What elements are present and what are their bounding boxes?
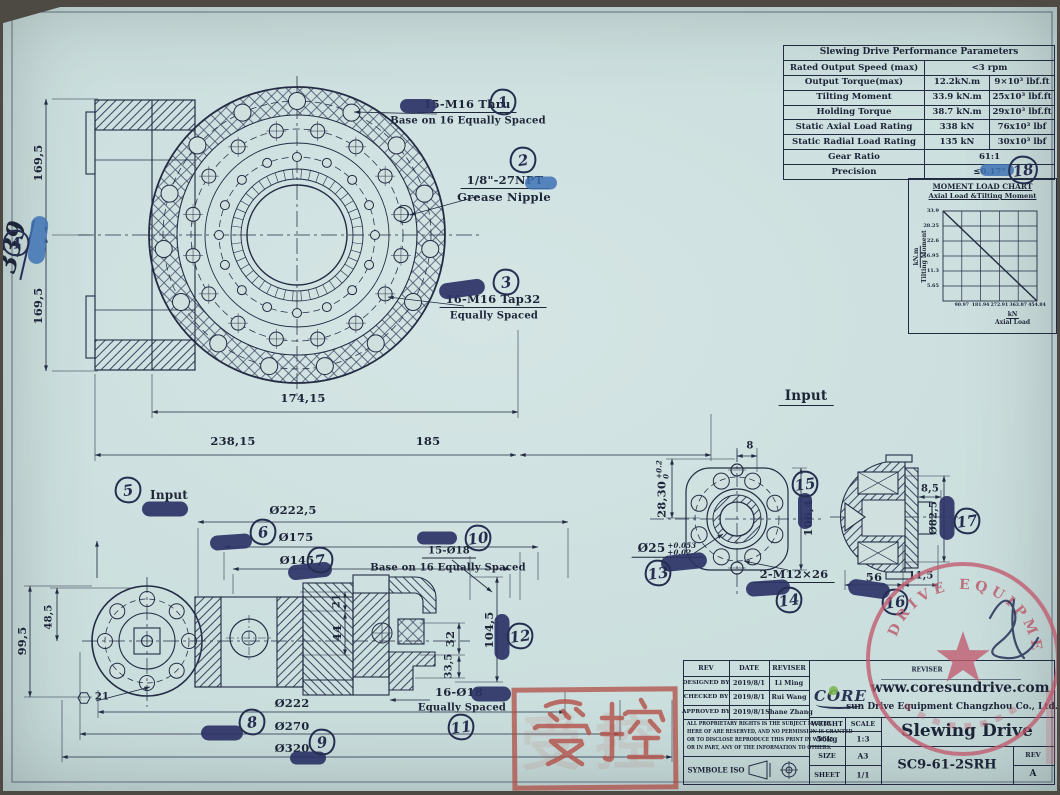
marker-blob-10 [417,532,457,545]
y-axis-unit: kN.m [913,246,921,268]
logo-leaf-icon [829,686,838,695]
dim-dia-222-5: Ø222,5 [269,503,316,517]
perf-value: 38.7 kN.m [925,106,990,120]
tb-weight-value: 56kg [817,734,838,743]
marker-blob-8 [201,726,243,741]
dim-174-15: 174,15 [280,391,325,405]
dim-238-15: 238,15 [210,434,255,448]
chart-title: MOMENT LOAD CHART [909,182,1056,191]
tb-designed-name: Li Ming [775,679,803,687]
tb-reviser2: REVISER [912,667,943,674]
dim-99-5: 99,5 [15,627,29,656]
dim-11-5: 11,5 [908,571,933,582]
tb-weight-label: WEIGHT [811,720,843,728]
perf-label: Gear Ratio [784,150,925,164]
dim-21-hex: 21 [95,692,109,703]
x-axis-unit: kN [1006,311,1020,319]
dim-169-5-lower: 169,5 [31,287,45,324]
marker-blob-2 [525,177,557,190]
perf-label: Precision [784,165,925,179]
marker-blob-17 [940,496,955,540]
perf-label: Tilting Moment [784,91,925,105]
dim-dia-270: Ø270 [275,719,310,733]
tb-col-reviser: REVISER [772,664,806,672]
perf-value-imperial: 9×10³ lbf.ft [990,76,1054,90]
chart-y-axis-label: kN.m Tilting Moment [913,230,928,283]
tb-approved-by: APPROVED BY [682,709,730,715]
dim-dia-82-5: Ø82,5 [929,501,940,535]
perf-value-imperial: 76x10³ lbf [990,120,1054,134]
dim-44: 44 [330,625,344,641]
photo-edge-left [0,0,3,795]
callout-equally-spaced-b: Equally Spaced [418,703,506,714]
title-block: REV DATE REVISER DESIGNED BY 2019/8/1 Li… [683,660,1055,785]
chart-plot-area [943,211,1037,301]
y-axis-name: Tilting Moment [921,230,928,283]
tb-checked-name: Rui Wang [771,693,806,701]
chart-x-axis-label: kN Axial Load [995,311,1030,326]
perf-value: 338 kN [925,120,990,134]
tb-designed-by: DESIGNED BY [683,680,730,686]
tb-website: www.coresundrive.com [870,680,1049,696]
tb-sheet-value: 1/1 [856,770,869,779]
chart-subtitle: Axial Load &Tilting Moment [909,192,1056,200]
x-tick: 90.97 [955,303,969,308]
photographed-engineering-drawing: { "sheet": { "stamp_controlled": "受控", "… [0,0,1060,795]
tb-col-rev: REV [698,664,713,672]
dim-33-5: 33,5 [444,653,455,678]
marker-blob-1 [400,99,436,113]
perf-label: Holding Torque [784,106,925,120]
dim-185: 185 [416,434,441,448]
y-tick: 5.65 [927,283,939,289]
callout-base-on-16-b: Base on 16 Equally Spaced [370,563,526,574]
perf-value: 33.9 kN.m [925,91,990,105]
dim-8: 8 [746,441,753,452]
tb-model-number: SC9-61-2SRH [897,758,996,773]
dim-dia-222: Ø222 [275,696,310,710]
tb-rev-label: REV [1025,751,1040,759]
tb-designed-date: 2019/8/1 [733,679,765,687]
x-tick: 363.87 [1009,303,1027,308]
controlled-stamp-text: 受控 [521,694,670,782]
tb-size-label: SIZE [818,752,835,760]
perf-value: <3 rpm [925,61,1054,75]
dim-dia-25-value: Ø25 [638,541,666,555]
input-label-main: Input [779,388,834,406]
perf-value-imperial: 25x10³ lbf.ft [990,91,1054,105]
tb-size-value: A3 [857,751,868,760]
dim-21-step: 21 [332,594,343,608]
dim-dia-175: Ø175 [279,530,314,544]
projection-symbol-target-icon [779,761,799,780]
controlled-stamp: 受控 [512,686,679,790]
marker-blob-11 [471,687,511,702]
perf-label: Static Axial Load Rating [784,120,925,134]
dim-8-5: 8,5 [921,484,939,495]
tb-col-date: DATE [739,664,759,672]
x-axis-name: Axial Load [995,319,1030,326]
section-view-housing [78,575,470,707]
dim-48-5: 48,5 [44,604,55,629]
input-label-small: Input [150,488,188,502]
tb-symbole-iso: SYMBOLE ISO [687,766,744,775]
perf-value: 12.2kN.m [925,76,990,90]
callout-equally-spaced: Equally Spaced [450,311,538,322]
tb-product-name: Slewing Drive [901,721,1033,741]
tb-rev-value: A [1030,769,1037,779]
dim-28-30-value: 28,30 [655,481,669,518]
tb-scale-label: SCALE [851,720,875,728]
perf-label: Output Torque(max) [784,76,925,90]
x-tick: 181.94 [972,303,990,308]
perf-label: Static Radial Load Rating [784,135,925,149]
dim-28-30: 28,30+0.20 [655,460,670,518]
marker-blob-6 [210,533,253,551]
perf-value-imperial: 30x10³ lbf [990,135,1054,149]
tb-scale-value: 1:3 [856,734,869,743]
tb-checked-by: CHECKED BY [684,694,729,700]
perf-value: 135 kN [925,135,990,149]
tb-proprietary-line4: OR IN PART, ANY OF THE INFORMATION TO OT… [687,745,831,751]
x-tick: 272.91 [991,303,1009,308]
projection-symbol-cone-icon [746,760,776,780]
tb-approved-date: 2019/8/1 [733,708,765,716]
y-tick: 28.25 [923,223,939,229]
marker-blob-15 [798,493,812,529]
tol-lower: 0 [663,460,670,479]
tb-approved-name: Shane Zhang [765,708,813,716]
callout-base-on-16: Base on 16 Equally Spaced [390,116,546,127]
marker-blob-5 [142,502,188,517]
moment-load-chart: MOMENT LOAD CHART Axial Load &Tilting Mo… [908,178,1057,334]
tb-checked-date: 2019/8/1 [733,693,765,701]
tb-sheet-label: SHEET [814,771,840,779]
photo-edge-top [0,0,1060,7]
tb-proprietary-line3: OR TO DISCLOSE REPRODUCE THIS PRINT IN W… [687,737,833,743]
y-tick: 33.9 [927,208,939,214]
tb-company: sun Drive Equipment Changzhou Co., Ltd. [846,702,1058,712]
perf-value-imperial: 29x10³ lbf.ft [990,106,1054,120]
dim-32: 32 [443,631,457,647]
tb-proprietary-line1: ALL PROPRIETARY RIGHTS IS THE SUBJECT MA… [687,721,831,727]
photo-edge-bottom [0,791,1060,795]
x-tick: 454.84 [1028,303,1046,308]
callout-grease-nipple: Grease Nipple [457,190,551,204]
dim-169-5-upper: 169,5 [31,144,45,181]
perf-table-title: Slewing Drive Performance Parameters [784,46,1054,60]
y-tick: 11.3 [927,268,939,274]
perf-label: Rated Output Speed (max) [784,61,925,75]
y-tick: 22.6 [927,238,939,244]
